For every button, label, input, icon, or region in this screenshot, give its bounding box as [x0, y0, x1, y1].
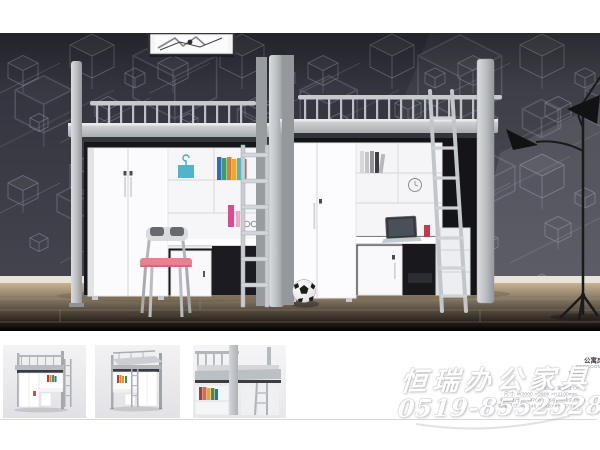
watermark-swoosh [410, 412, 580, 434]
teal-basket [178, 165, 194, 178]
product-page: 公寓床 BEDROOM TC-100 颜色: 宝石白 OEM 尺寸: W2000… [0, 0, 600, 450]
left-wardrobe [88, 148, 168, 300]
left-bed-unit [84, 133, 264, 300]
right-desk-cabinet [358, 246, 402, 295]
red-decor [424, 225, 430, 237]
loft-bed-scene [0, 33, 600, 331]
product-photo [0, 33, 600, 331]
gray-books [360, 151, 385, 173]
thumbnail-loft-bed-angle[interactable] [3, 345, 86, 418]
left-desk-cabinet [171, 251, 211, 296]
wall-art-frame [149, 33, 234, 57]
thumbnail-loft-bed-front[interactable] [95, 345, 180, 418]
thumbnail-loft-bed-detail[interactable] [193, 345, 286, 418]
right-wardrobe [286, 143, 356, 302]
right-bed-unit [286, 129, 482, 302]
soccer-ball [293, 280, 316, 303]
laptop [381, 216, 422, 243]
